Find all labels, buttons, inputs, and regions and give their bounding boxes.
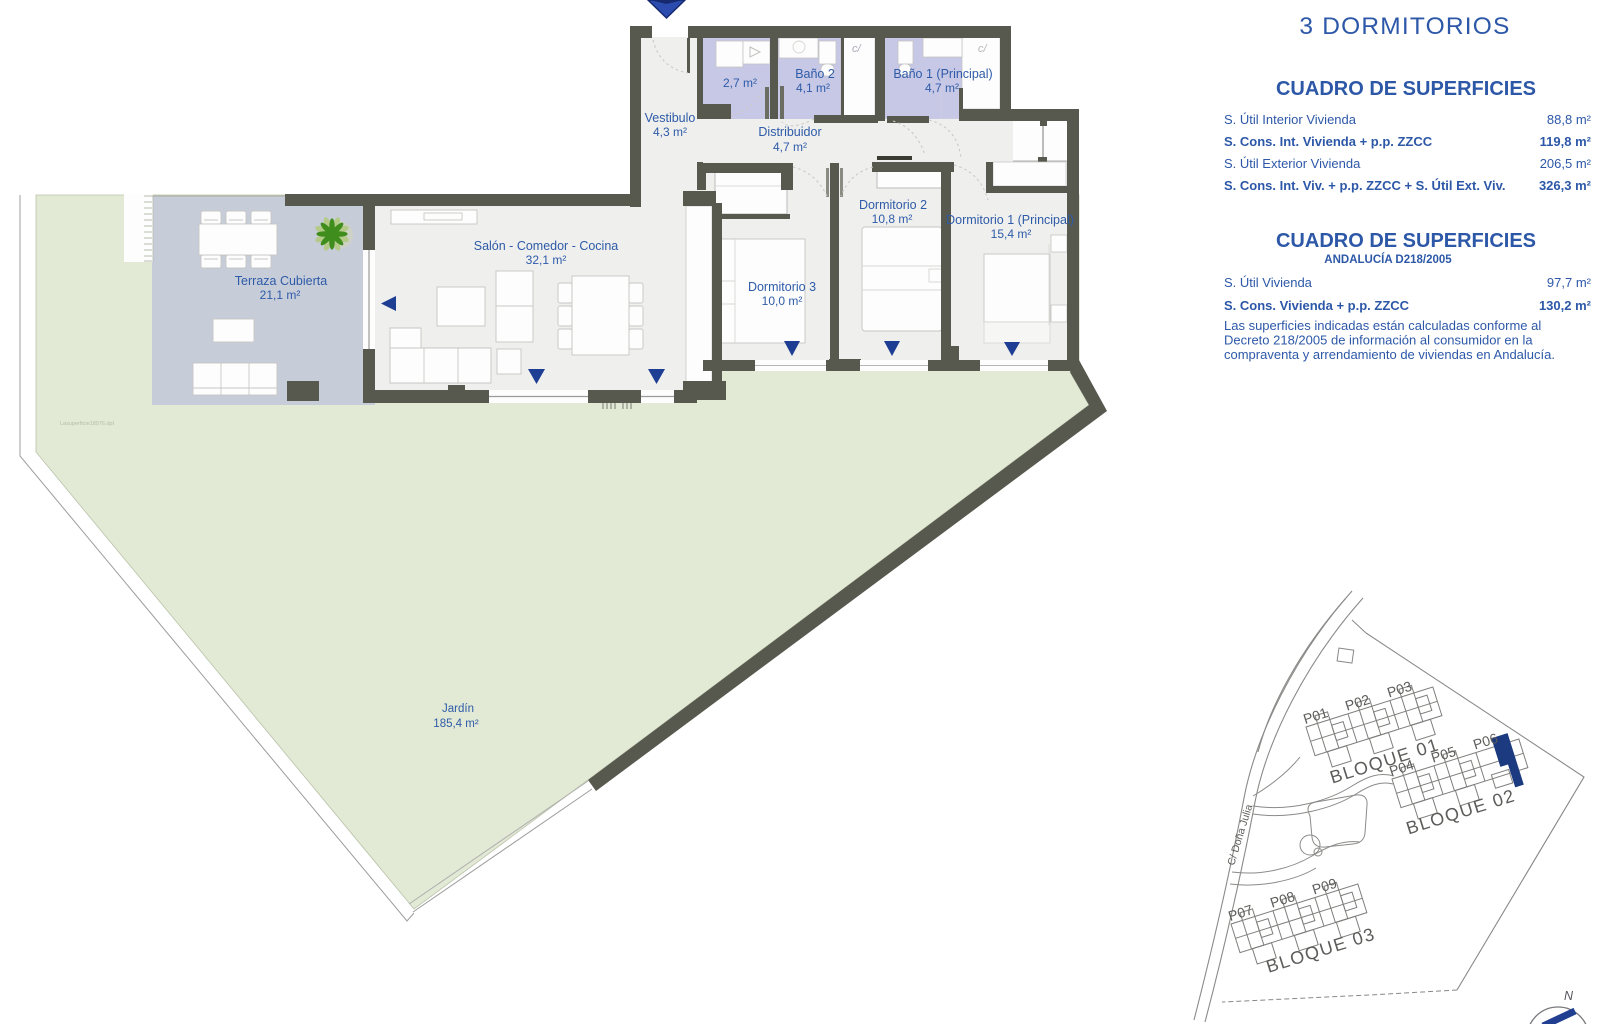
svg-text:4,7 m²: 4,7 m² [925,81,959,95]
svg-text:4,7 m²: 4,7 m² [773,140,807,154]
svg-text:CUADRO DE SUPERFICIES: CUADRO DE SUPERFICIES [1276,78,1536,100]
svg-text:10,8 m²: 10,8 m² [872,212,913,226]
svg-text:4,3 m²: 4,3 m² [653,125,687,139]
svg-text:S. Útil Vivienda: S. Útil Vivienda [1224,275,1313,290]
svg-text:Lasuperficie18976.dpt: Lasuperficie18976.dpt [60,421,115,427]
svg-text:3 DORMITORIOS: 3 DORMITORIOS [1299,13,1510,40]
svg-text:Dormitorio 3: Dormitorio 3 [748,280,816,294]
svg-text:Baño 1 (Principal): Baño 1 (Principal) [893,67,992,81]
svg-text:S. Útil Interior Vivienda: S. Útil Interior Vivienda [1224,112,1357,127]
svg-text:206,5 m²: 206,5 m² [1540,156,1592,171]
svg-text:88,8 m²: 88,8 m² [1547,112,1592,127]
svg-text:Salón - Comedor - Cocina: Salón - Comedor - Cocina [474,239,619,253]
svg-text:S. Cons. Vivienda + p.p. ZZCC: S. Cons. Vivienda + p.p. ZZCC [1224,298,1410,313]
svg-text:ANDALUCÍA D218/2005: ANDALUCÍA D218/2005 [1324,253,1452,266]
svg-text:4,1 m²: 4,1 m² [796,81,830,95]
svg-text:compraventa y arrendamiento de: compraventa y arrendamiento de viviendas… [1224,347,1555,362]
svg-text:326,3 m²: 326,3 m² [1539,178,1592,193]
svg-text:185,4 m²: 185,4 m² [433,718,479,730]
svg-text:N: N [1564,989,1574,1003]
svg-text:130,2 m²: 130,2 m² [1539,298,1592,313]
svg-text:Las superficies indicadas está: Las superficies indicadas están calculad… [1224,318,1541,333]
svg-text:10,0 m²: 10,0 m² [762,294,803,308]
svg-text:Vestibulo: Vestibulo [645,111,696,125]
svg-text:Dormitorio 2: Dormitorio 2 [859,198,927,212]
svg-text:Baño 2: Baño 2 [795,67,835,81]
svg-text:Jardín: Jardín [442,703,474,715]
svg-text:Terraza Cubierta: Terraza Cubierta [235,274,327,288]
svg-text:15,4 m²: 15,4 m² [991,227,1032,241]
svg-text:c/: c/ [852,43,862,55]
svg-text:CUADRO DE SUPERFICIES: CUADRO DE SUPERFICIES [1276,230,1536,252]
svg-text:Dormitorio 1 (Principal): Dormitorio 1 (Principal) [946,213,1074,227]
svg-text:S. Útil Exterior Vivienda: S. Útil Exterior Vivienda [1224,156,1361,171]
svg-text:S. Cons. Int. Viv. + p.p. ZZCC: S. Cons. Int. Viv. + p.p. ZZCC + S. Útil… [1224,178,1505,193]
svg-text:119,8 m²: 119,8 m² [1540,134,1592,149]
svg-text:2,7 m²: 2,7 m² [723,76,757,90]
svg-text:S. Cons. Int. Vivienda + p.p.: S. Cons. Int. Vivienda + p.p. ZZCC [1224,134,1433,149]
svg-text:32,1 m²: 32,1 m² [526,253,567,267]
svg-text:Distribuidor: Distribuidor [758,125,821,139]
svg-text:97,7 m²: 97,7 m² [1547,275,1592,290]
svg-text:c/: c/ [978,43,988,55]
svg-text:21,1 m²: 21,1 m² [260,288,301,302]
svg-text:Decreto 218/2005 de informació: Decreto 218/2005 de información al consu… [1224,333,1533,348]
